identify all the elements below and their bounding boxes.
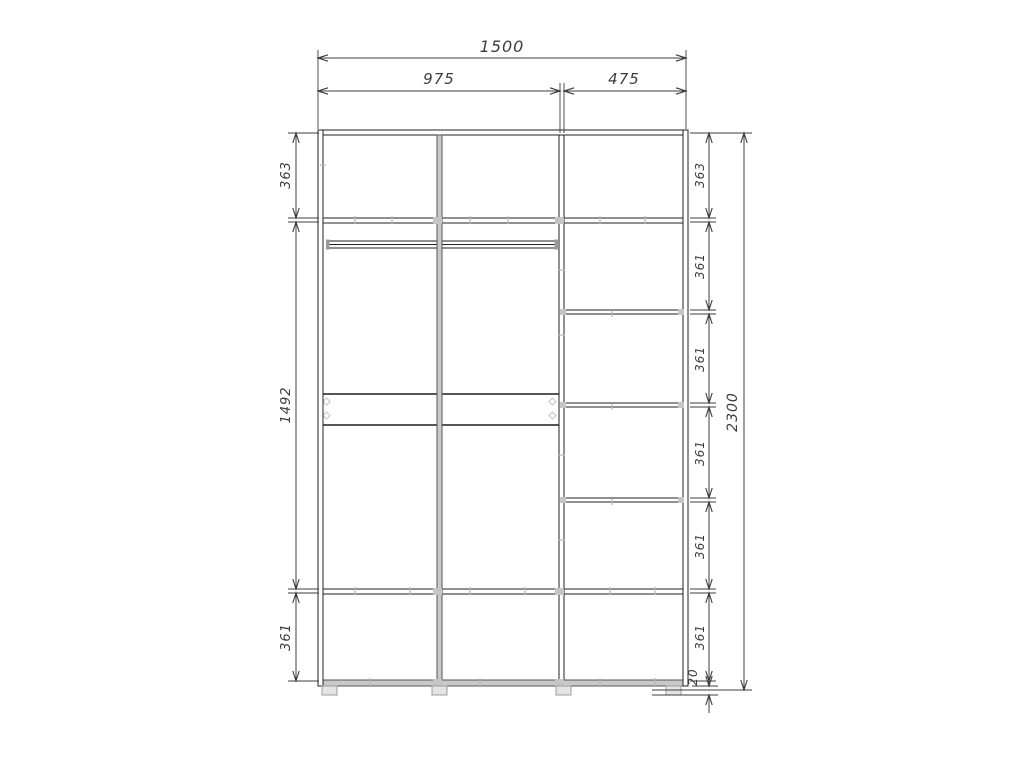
foot-1 [322,686,337,695]
dim-label-right-section-width: 475 [608,70,640,88]
right-shelf-2 [564,403,683,407]
dim-plinth: 20 [686,668,709,713]
rod-bracket-right [555,240,559,250]
wardrobe-drawing: 1500 975 475 363 1492 361 363 [0,0,1024,768]
dim-overall-width: 1500 [318,37,686,58]
drill-marks [320,165,655,687]
foot-3 [556,686,571,695]
dim-label-plinth: 20 [686,668,700,685]
foot-2 [432,686,447,695]
dim-left-top: 363 [279,133,296,218]
center-divider [437,135,442,680]
dim-left-section-width: 975 [318,70,560,91]
foot-4 [666,686,681,695]
right-shelf-3 [564,498,683,502]
upper-full-shelf [323,218,683,223]
feet [322,686,681,695]
right-shelf-1 [564,310,683,314]
dim-label-left-top: 363 [279,161,294,189]
cabinet-structure [318,130,688,695]
dim-right-section-width: 475 [564,70,686,91]
dim-right-4: 361 [693,407,709,498]
shelf-clip-icon [323,398,330,405]
dim-label-right-3: 361 [693,346,707,372]
dim-label-overall-height: 2300 [725,392,741,432]
lower-full-shelf [323,589,683,594]
dim-right-3: 361 [693,314,709,403]
extension-lines [288,50,752,695]
dim-right-6: 361 [693,593,709,681]
dim-label-right-5: 361 [693,533,707,559]
shelf-clip-icon [549,398,556,405]
dim-right-1: 363 [693,133,709,218]
dim-label-right-2: 361 [693,253,707,279]
dim-left-bottom: 361 [279,593,296,681]
dim-label-left-middle: 1492 [279,386,294,423]
shelf-clip-icon [549,412,556,419]
shelf-clip-icon [323,412,330,419]
dim-left-middle: 1492 [279,222,296,589]
dim-right-2: 361 [693,222,709,310]
dim-label-right-1: 363 [693,162,707,188]
dim-label-left-bottom: 361 [279,623,294,651]
dim-label-right-6: 361 [693,624,707,650]
dim-label-overall-width: 1500 [480,37,525,56]
dimension-annotations: 1500 975 475 363 1492 361 363 [279,37,744,713]
dim-overall-height: 2300 [725,133,744,690]
rod-bracket-left [326,240,330,250]
top-panel [318,130,688,135]
left-side-panel [318,130,323,686]
dim-right-5: 361 [693,502,709,589]
dim-label-right-4: 361 [693,440,707,466]
bottom-panel [318,680,688,686]
dim-label-left-section-width: 975 [423,70,455,88]
